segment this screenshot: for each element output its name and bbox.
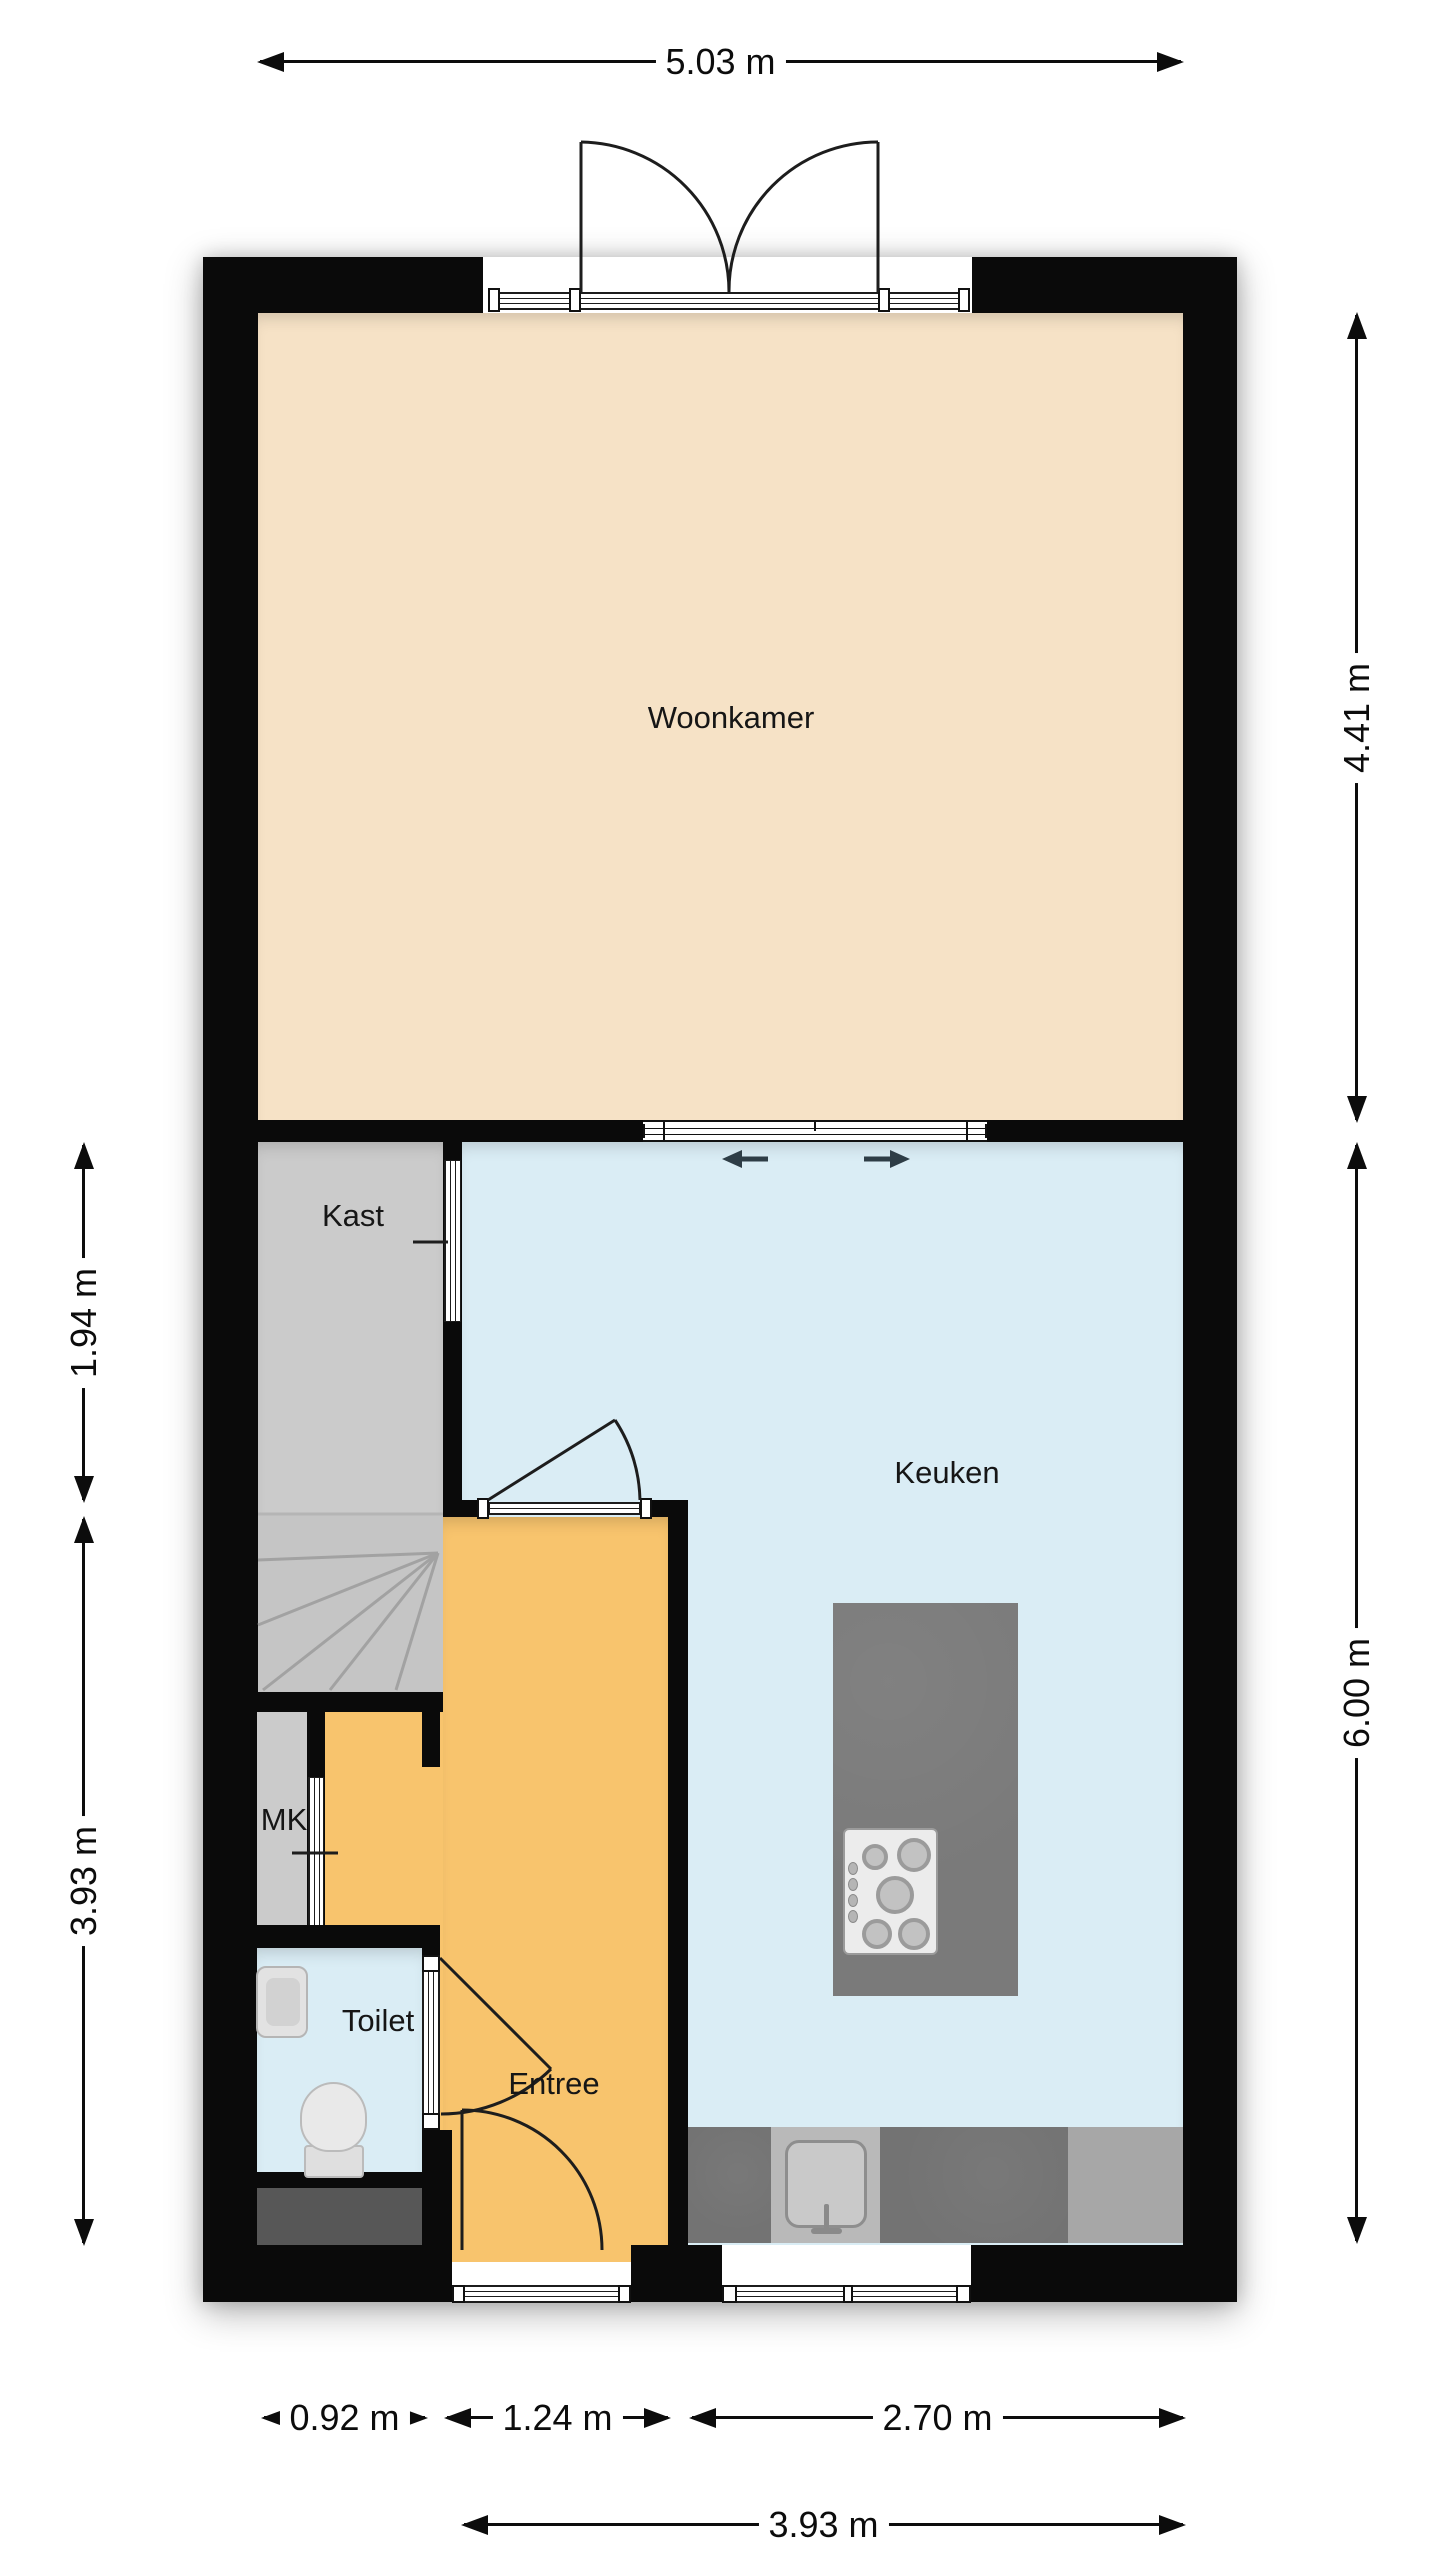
dimension-right-lower: 6.00 m [1342, 1143, 1372, 2243]
dimension-bottom-total: 3.93 m [462, 2510, 1185, 2540]
wall-woonkamer-keuken-left [258, 1120, 643, 1142]
arrow-right-icon [1159, 2408, 1186, 2428]
dimension-left-upper: 1.94 m [69, 1143, 99, 1502]
burner-icon [898, 1918, 930, 1950]
wall-stairs-bottom [258, 1692, 440, 1712]
faucet-icon [824, 2204, 829, 2230]
arrow-left-icon [257, 52, 284, 72]
toilet-bowl-icon [300, 2082, 367, 2152]
arrow-left-icon [689, 2408, 716, 2428]
wall-toilet-right-bottom [422, 2130, 452, 2245]
kast-door [444, 1160, 461, 1322]
front-door-sill [452, 2285, 631, 2303]
front-door-jamb [452, 2285, 465, 2303]
dimension-left-lower: 3.93 m [69, 1517, 99, 2245]
room-label-kast: Kast [322, 1198, 384, 1234]
wall-entree-keuken [668, 1500, 688, 2245]
dimension-value: 3.93 m [61, 1816, 107, 1946]
mk-door [308, 1777, 324, 1928]
kitchen-counter-end [1068, 2127, 1183, 2243]
stove-knob [848, 1894, 858, 1907]
wall-toilet-top [257, 1925, 440, 1948]
stairs-icon [258, 1513, 443, 1692]
sliding-door-meeting-stile [814, 1122, 816, 1131]
arrow-down-icon [1347, 1096, 1367, 1123]
arrow-left-icon [461, 2515, 488, 2535]
front-door-jamb [618, 2285, 631, 2303]
stove-knob [848, 1862, 858, 1875]
window-frame [488, 288, 500, 312]
dimension-value: 2.70 m [872, 2395, 1002, 2441]
arrow-up-icon [74, 1516, 94, 1543]
wall-toilet-right-top [422, 1930, 440, 1955]
dimension-value: 6.00 m [1334, 1628, 1380, 1758]
wall-entree-stub [422, 1712, 440, 1767]
window-frame [958, 288, 970, 312]
window-mullion [843, 2285, 853, 2303]
entree-keuken-door-sill [489, 1502, 640, 1515]
dimension-value: 5.03 m [655, 39, 785, 85]
burner-icon [897, 1838, 931, 1872]
room-label-woonkamer: Woonkamer [648, 700, 815, 736]
wall-niche [257, 2188, 422, 2245]
dimension-right-upper: 4.41 m [1342, 313, 1372, 1122]
dimension-value: 4.41 m [1334, 652, 1380, 782]
sliding-door [643, 1120, 987, 1142]
dimension-top-width: 5.03 m [258, 47, 1183, 77]
arrow-right-icon [644, 2408, 671, 2428]
dimension-value: 3.93 m [758, 2502, 888, 2548]
wall-woonkamer-keuken-right [987, 1120, 1183, 1142]
arrow-left-icon [444, 2408, 471, 2428]
room-label-keuken: Keuken [894, 1455, 999, 1491]
arrow-down-icon [1347, 2217, 1367, 2244]
arrow-down-icon [74, 1476, 94, 1503]
sliding-door-edge [643, 1124, 645, 1138]
arrow-right-icon [1159, 2515, 1186, 2535]
window-frame [722, 2285, 737, 2303]
kitchen-counter [688, 2127, 771, 2243]
room-label-entree: Entree [508, 2066, 599, 2102]
front-door-threshold [452, 2245, 631, 2262]
sliding-door-edge [985, 1124, 987, 1138]
dimension-bottom-entree: 1.24 m [445, 2403, 670, 2433]
room-label-toilet: Toilet [342, 2003, 414, 2039]
window-frame [956, 2285, 971, 2303]
arrow-up-icon [1347, 1142, 1367, 1169]
burner-icon [862, 1919, 892, 1949]
entree-door-jamb [477, 1498, 489, 1519]
burner-icon [862, 1844, 888, 1870]
faucet-icon [811, 2228, 842, 2234]
toilet-door-jamb [422, 2113, 440, 2130]
dimension-value: 1.24 m [492, 2395, 622, 2441]
arrow-up-icon [1347, 312, 1367, 339]
entree-door-jamb [640, 1498, 652, 1519]
floorplan-canvas: Woonkamer Kast Keuken MK Toilet Entree 5… [0, 0, 1440, 2560]
dimension-value: 1.94 m [61, 1257, 107, 1387]
arrow-up-icon [74, 1142, 94, 1169]
window-frame [569, 288, 581, 312]
washbasin-icon [256, 1966, 308, 2038]
kitchen-counter [880, 2127, 1068, 2243]
dimension-value: 0.92 m [279, 2395, 409, 2441]
top-window-sill [488, 292, 970, 310]
toilet-door-jamb [422, 1955, 440, 1972]
toilet-door [422, 1955, 440, 2130]
dimension-bottom-toilet: 0.92 m [262, 2403, 427, 2433]
dimension-bottom-keuken: 2.70 m [690, 2403, 1185, 2433]
sliding-door-track [645, 1134, 985, 1135]
room-label-mk: MK [261, 1802, 308, 1838]
stove-knob [848, 1910, 858, 1923]
sliding-door-cap [966, 1122, 968, 1140]
burner-icon [876, 1876, 914, 1914]
window-frame [878, 288, 890, 312]
arrow-right-icon [1157, 52, 1184, 72]
stove-knob [848, 1878, 858, 1891]
sliding-door-cap [663, 1122, 665, 1140]
stove-icon [843, 1828, 938, 1955]
arrow-down-icon [74, 2219, 94, 2246]
wall-entree-top-left [443, 1500, 477, 1517]
room-entree-floor [443, 1517, 668, 2245]
